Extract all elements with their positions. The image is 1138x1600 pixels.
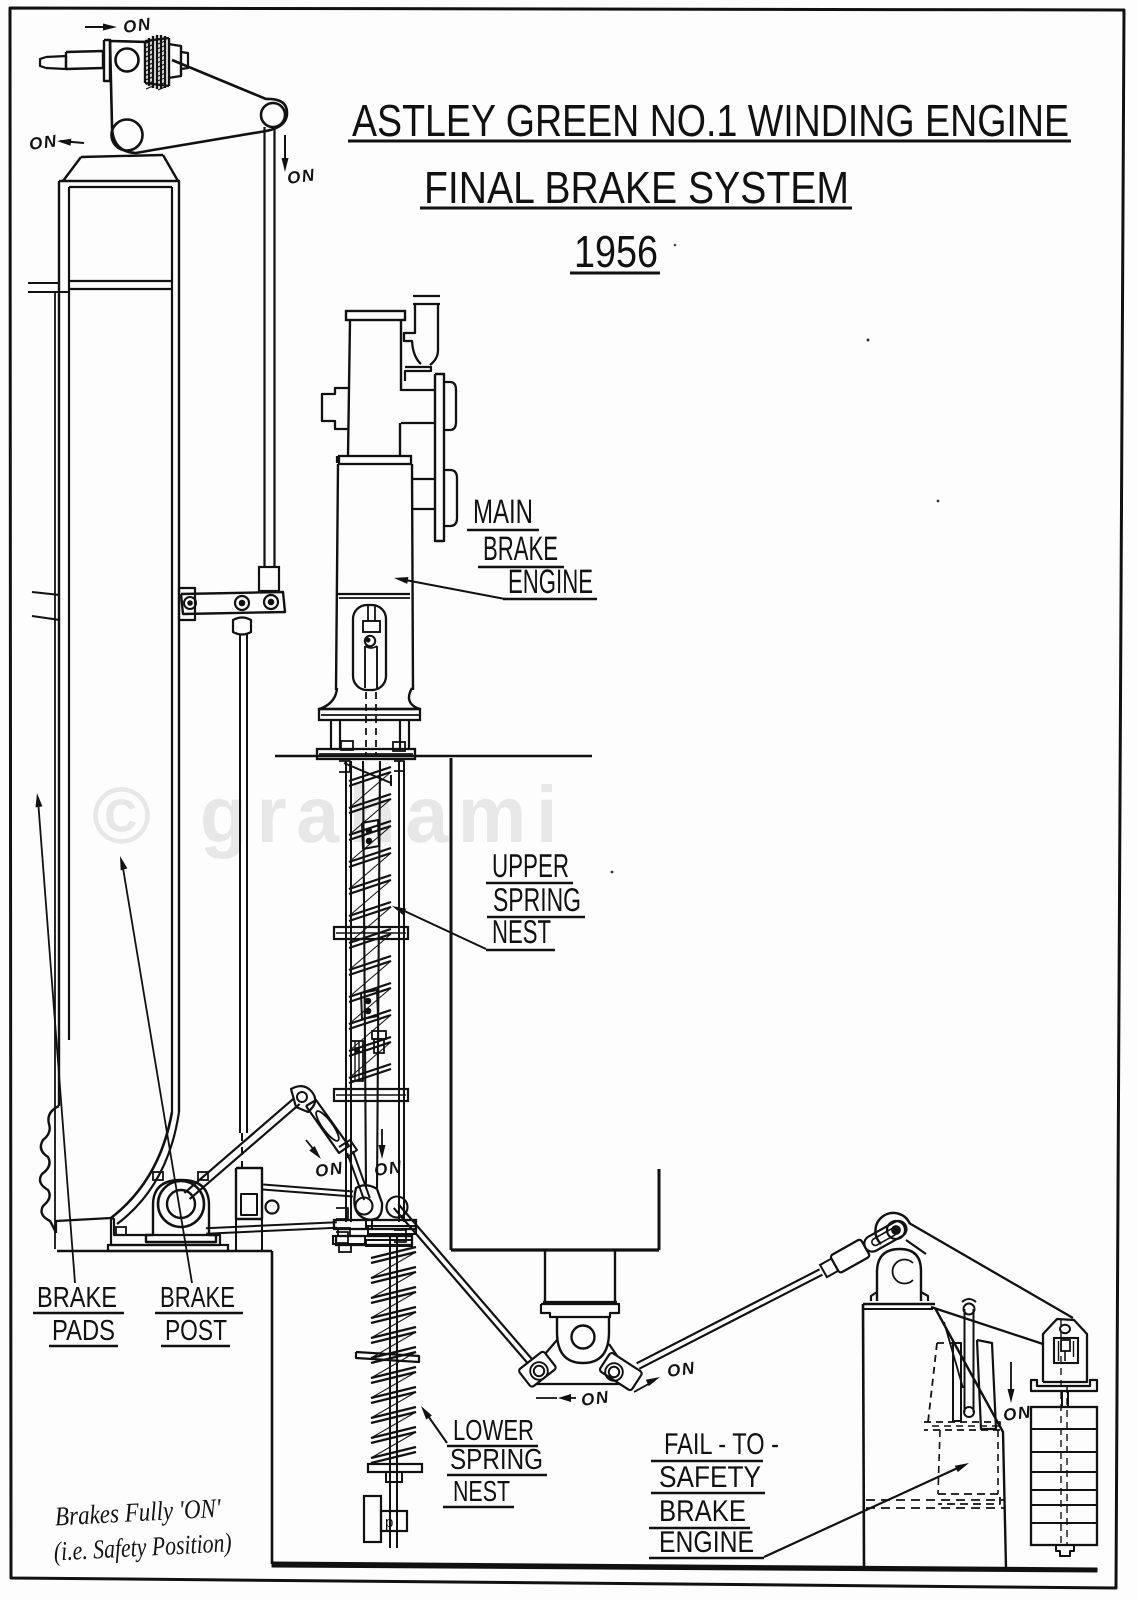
svg-text:NEST: NEST — [453, 1476, 510, 1508]
svg-text:ON: ON — [1002, 1402, 1033, 1425]
svg-text:SAFETY: SAFETY — [659, 1461, 761, 1494]
svg-text:(i.e. Safety Position): (i.e. Safety Position) — [53, 1527, 232, 1566]
svg-text:ENGINE: ENGINE — [508, 563, 593, 601]
svg-text:POST: POST — [165, 1315, 227, 1347]
svg-text:UPPER: UPPER — [492, 847, 569, 884]
svg-text:1956: 1956 — [574, 226, 658, 277]
svg-text:ON: ON — [314, 1158, 345, 1181]
svg-text:SPRING: SPRING — [450, 1444, 543, 1476]
svg-text:grahami: grahami — [200, 770, 567, 859]
svg-text:FINAL BRAKE SYSTEM: FINAL BRAKE SYSTEM — [424, 162, 849, 213]
svg-text:BRAKE: BRAKE — [160, 1282, 235, 1314]
svg-text:NEST: NEST — [492, 913, 551, 950]
svg-text:ON: ON — [373, 1157, 404, 1180]
svg-text:ON: ON — [580, 1387, 611, 1410]
svg-text:ON: ON — [286, 165, 317, 188]
svg-text:ENGINE: ENGINE — [659, 1526, 754, 1559]
svg-text:PADS: PADS — [52, 1315, 115, 1347]
svg-text:LOWER: LOWER — [453, 1415, 534, 1447]
svg-text:p: p — [385, 1514, 393, 1531]
svg-text:ON: ON — [122, 14, 153, 37]
svg-text:©: © — [92, 771, 151, 860]
svg-text:MAIN: MAIN — [473, 493, 533, 531]
svg-text:ON: ON — [666, 1358, 697, 1381]
svg-text:BRAKE: BRAKE — [37, 1282, 117, 1314]
svg-text:FAIL - TO -: FAIL - TO - — [664, 1428, 779, 1461]
svg-text:ASTLEY GREEN NO.1 WINDING: ASTLEY GREEN NO.1 WINDING ENGINE — [352, 95, 1069, 146]
svg-text:Brakes Fully 'ON': Brakes Fully 'ON' — [54, 1493, 222, 1532]
svg-text:BRAKE: BRAKE — [659, 1495, 746, 1528]
svg-text:ON: ON — [28, 131, 59, 154]
